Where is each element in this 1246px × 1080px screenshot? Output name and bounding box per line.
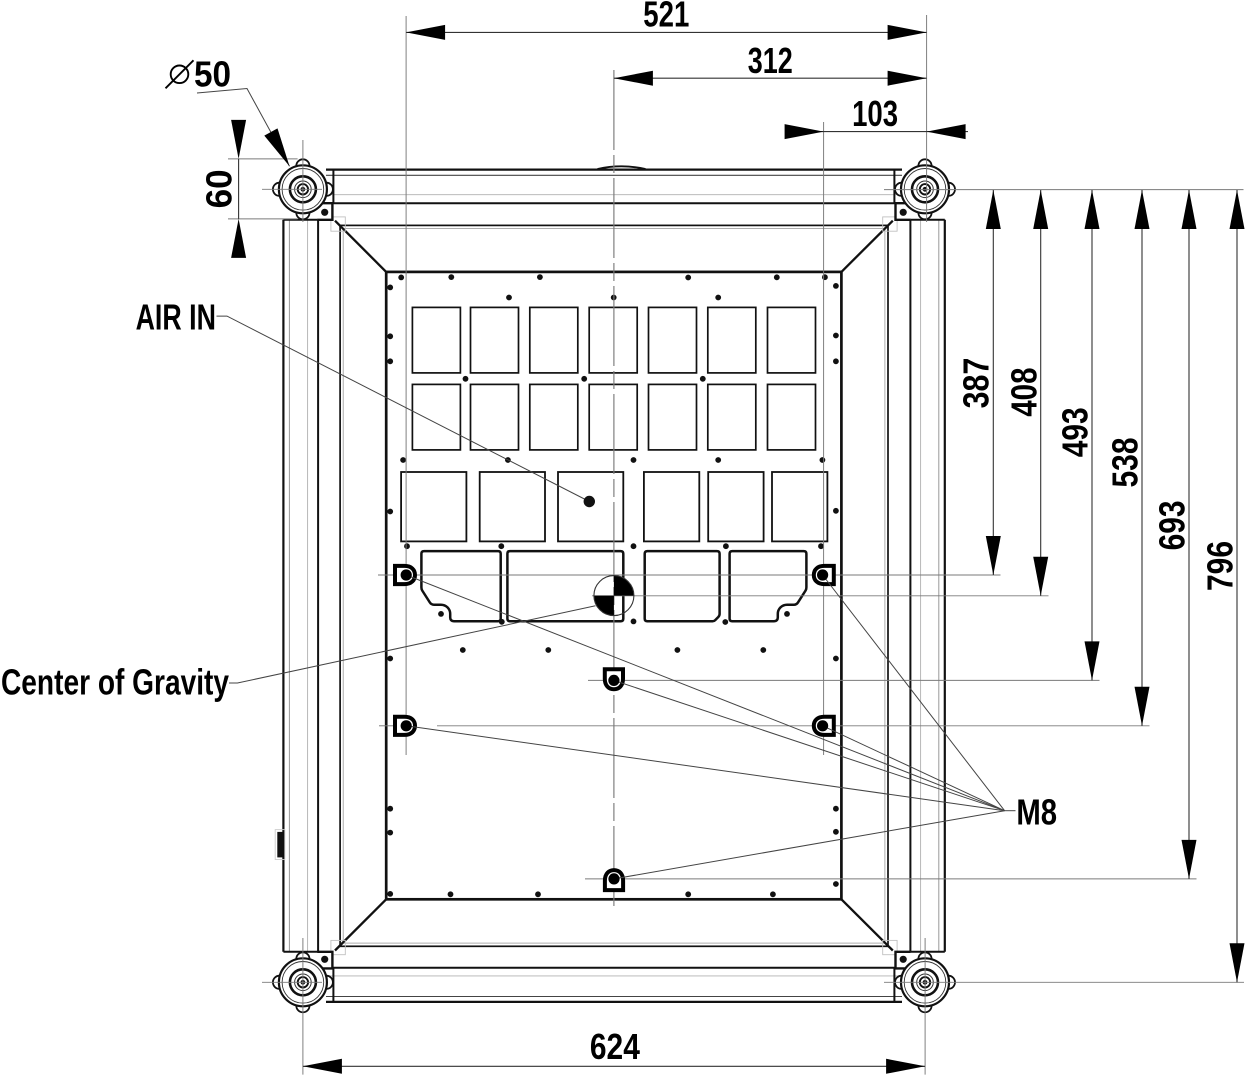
svg-text:50: 50 — [194, 53, 231, 94]
svg-text:103: 103 — [852, 93, 898, 134]
svg-text:M8: M8 — [1016, 792, 1057, 833]
svg-text:796: 796 — [1200, 541, 1241, 591]
svg-text:60: 60 — [199, 169, 240, 208]
svg-text:408: 408 — [1004, 367, 1045, 416]
svg-text:312: 312 — [748, 40, 793, 81]
svg-text:624: 624 — [590, 1026, 640, 1067]
svg-text:693: 693 — [1151, 500, 1192, 550]
svg-text:538: 538 — [1105, 438, 1146, 488]
svg-text:521: 521 — [643, 0, 689, 35]
svg-text:493: 493 — [1055, 407, 1096, 457]
svg-text:AIR IN: AIR IN — [136, 296, 216, 337]
svg-text:387: 387 — [955, 358, 996, 409]
svg-text:Center of Gravity: Center of Gravity — [1, 661, 229, 702]
